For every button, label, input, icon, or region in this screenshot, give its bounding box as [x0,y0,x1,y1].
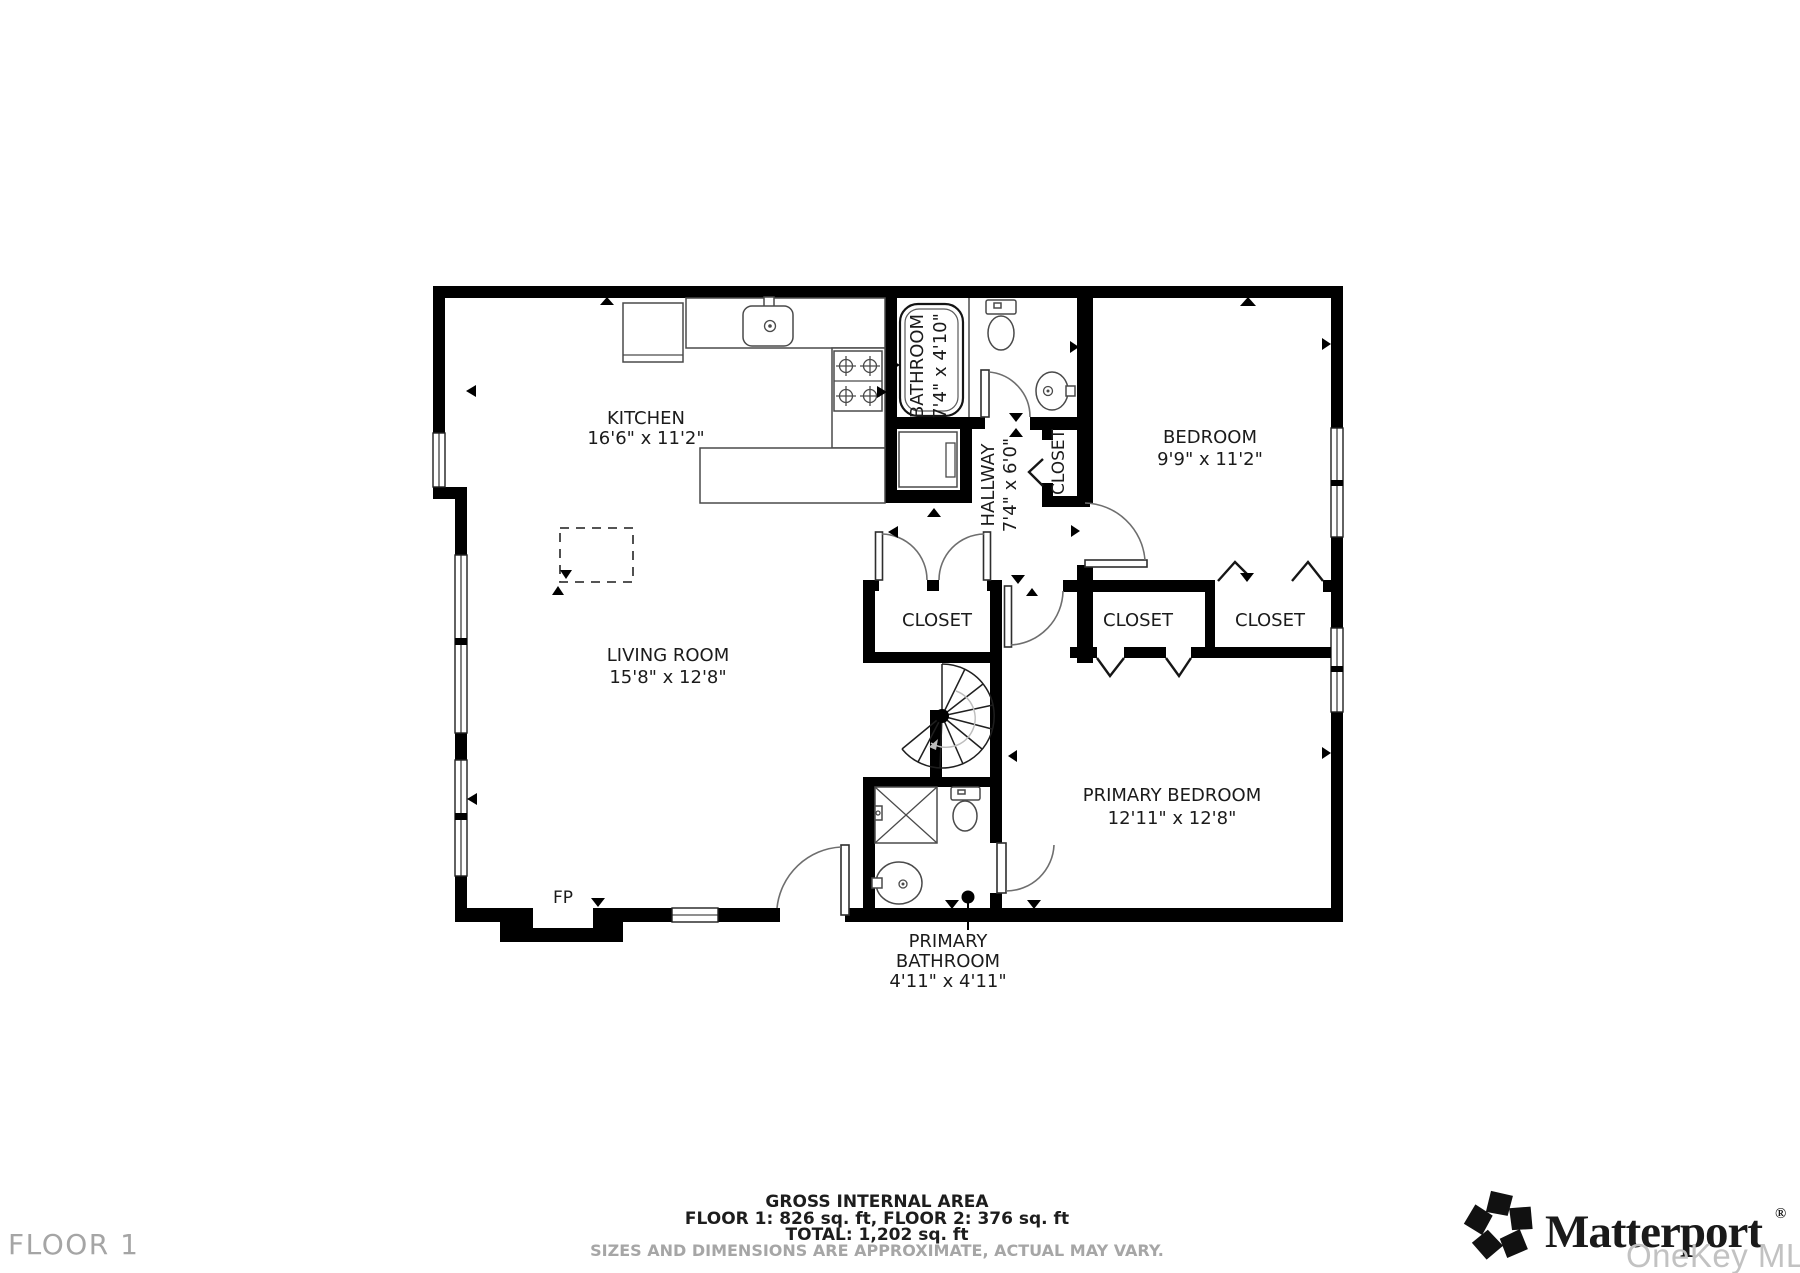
bedroom-dims: 9'9" x 11'2" [1157,449,1263,470]
disclaimer: SIZES AND DIMENSIONS ARE APPROXIMATE, AC… [590,1241,1164,1260]
window-right-bedroom [1331,428,1343,537]
bathroom-sink-icon [872,862,922,904]
window-left-kitchen [433,433,445,487]
skylight-dashed-outline [552,528,633,595]
primary-bathroom-label-1: PRIMARY [909,931,989,952]
window-left-living-lower [455,760,467,876]
laundry-closet [899,432,957,487]
closet-rod-chevrons [1029,459,1323,676]
toilet-icon [986,300,1016,350]
shower-icon [875,787,937,843]
counter-peninsula [700,448,885,503]
primary-bedroom-label: PRIMARY BEDROOM [1083,785,1262,806]
floor-plan-page: KITCHEN 16'6" x 11'2" LIVING ROOM 15'8" … [0,0,1800,1273]
bathroom-door [981,370,1030,417]
kitchen-label: KITCHEN [607,408,685,429]
living-room-dims: 15'8" x 12'8" [609,667,726,688]
window-left-living-upper [455,555,467,733]
stove-icon [834,351,882,411]
bathroom-label: BATHROOM [907,314,928,418]
brand: Matterport ® OneKey MLS [1457,1185,1800,1273]
bathroom-sink-icon [1036,372,1075,410]
toilet-icon [951,787,980,831]
floor-plan-canvas: KITCHEN 16'6" x 11'2" LIVING ROOM 15'8" … [0,0,1800,1273]
fireplace-label: FP [553,888,573,908]
spiral-staircase-icon [902,664,994,768]
matterport-logo-icon [1457,1185,1544,1270]
bedroom-door [1085,503,1147,567]
exterior-back-door [777,845,849,915]
onekey-mls-watermark: OneKey MLS [1626,1237,1800,1273]
washer-icon [899,432,957,487]
window-right-primary-bedroom [1331,628,1343,712]
floor-label: FLOOR 1 [8,1228,139,1261]
bedroom-label: BEDROOM [1163,427,1257,448]
registered-mark: ® [1775,1206,1786,1222]
window-bottom-living [672,908,718,922]
bathroom-dims: 7'4" x 4'10" [930,313,951,419]
primary-bathroom-dims: 4'11" x 4'11" [889,971,1006,992]
primary-bathroom-door [997,843,1054,893]
footer: GROSS INTERNAL AREA FLOOR 1: 826 sq. ft,… [8,1192,1164,1261]
closet-main-label: CLOSET [902,610,973,631]
hallway-label: HALLWAY [978,443,999,527]
refrigerator-icon [623,303,683,362]
closet-double-door-right [939,532,991,580]
living-room-label: LIVING ROOM [607,645,729,666]
kitchen-fixtures [623,297,885,503]
kitchen-dims: 16'6" x 11'2" [587,428,704,449]
closet-hall-label: CLOSET [1049,428,1069,495]
primary-bathroom-label-2: BATHROOM [896,951,1000,972]
closet-bedroom-label: CLOSET [1235,610,1306,631]
closet-primary-label: CLOSET [1103,610,1174,631]
closet-double-door-left [876,532,928,580]
hallway-dims: 7'4" x 6'0" [1000,438,1021,532]
primary-bedroom-dims: 12'11" x 12'8" [1108,808,1237,829]
